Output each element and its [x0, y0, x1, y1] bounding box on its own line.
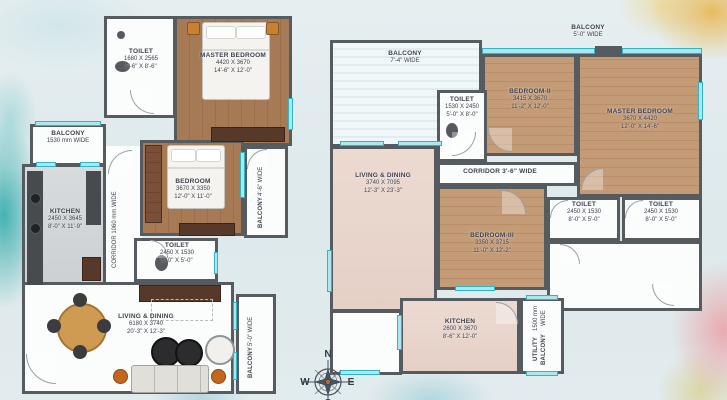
compass-rose: N W E S: [298, 346, 358, 400]
pillow: [196, 149, 222, 162]
right-floor-plan: BALCONY 7'-4" WIDE BALCONY 5'-0" WIDE BE…: [0, 0, 727, 400]
window: [526, 371, 558, 376]
wall-pillar: [595, 46, 622, 56]
room-label: TOILET 2450 X 1530 8'-0" X 5'-0": [632, 201, 690, 225]
window: [35, 121, 101, 126]
side-table: [211, 369, 226, 384]
room-label: BALCONY 5'-0" WIDE: [248, 312, 256, 378]
window: [327, 250, 332, 292]
room-label: TOILET 2450 X 1530 8'-0" X 5'-0": [555, 201, 613, 225]
nightstand: [266, 22, 279, 35]
room-label: BEDROOM 3670 X 3350 12'-0" X 11'-0": [158, 178, 228, 202]
room-label: KITCHEN 2600 X 3670 8'-6" X 12'-0": [428, 318, 492, 342]
room-label: BALCONY 4'-6" WIDE: [258, 158, 266, 228]
compass-north-label: N: [324, 349, 331, 360]
room-label: BEDROOM-II 3415 X 3670 11'-2" X 12'-0": [490, 88, 570, 112]
side-table: [113, 369, 128, 384]
corridor-label: CORRIDOR 1060 mm WIDE: [112, 168, 120, 268]
blanket-line: [203, 49, 269, 51]
room-label: MASTER BEDROOM 4420 X 3670 14'-6" X 12'-…: [184, 52, 282, 76]
pillow: [206, 26, 236, 39]
window: [36, 162, 56, 167]
window: [698, 82, 703, 120]
room-label: TOILET 2450 X 1530 8'-0" X 5'-0": [148, 242, 206, 266]
window: [240, 152, 245, 198]
coffee-table: [175, 339, 203, 367]
compass-east-label: E: [348, 377, 355, 388]
compass-west-label: W: [300, 377, 310, 388]
window: [526, 295, 558, 300]
room-label: LIVING & DINING 6180 X 3740 20'-3" X 12'…: [100, 313, 192, 337]
window: [622, 48, 702, 54]
room-label: BEDROOM-III 3350 X 3715 11'-0" X 12'-2": [452, 232, 532, 256]
room-label: MASTER BEDROOM 3670 X 4420 12'-0" X 14'-…: [592, 108, 688, 132]
accent-chair: [205, 335, 235, 365]
window: [80, 162, 100, 167]
pillow: [236, 26, 266, 39]
corridor-label: CORRIDOR 3'-6" WIDE: [445, 168, 555, 176]
window: [233, 352, 237, 380]
window: [340, 141, 384, 146]
window: [398, 141, 442, 146]
balcony-top-right-label: BALCONY 5'-0" WIDE: [545, 24, 631, 40]
nightstand: [187, 22, 200, 35]
room-label: LIVING & DINING 3740 X 7095 12'-3" X 23'…: [338, 172, 428, 196]
compass-icon: N W E S: [298, 346, 358, 400]
room-label: UTILITY BALCONY 1500 mm WIDE: [533, 306, 549, 366]
window: [214, 252, 218, 274]
dining-chair: [47, 319, 61, 333]
blanket-line: [168, 167, 224, 169]
window: [288, 98, 293, 130]
room-label: TOILET 1680 X 2565 5'-6" X 8'-6": [112, 48, 170, 72]
room-living-dining-right: [330, 146, 437, 312]
dresser: [179, 223, 235, 236]
room-label: BALCONY 7'-4" WIDE: [360, 50, 450, 66]
washbasin: [117, 31, 125, 39]
window: [397, 315, 402, 350]
dining-chair: [73, 293, 87, 307]
sofa: [131, 365, 209, 393]
window: [482, 48, 595, 54]
floor-plan-canvas: TOILET 1680 X 2565 5'-6" X 8'-6" MASTER …: [0, 0, 727, 400]
room-label: TOILET 1530 X 2450 5'-0" X 8'-0": [438, 96, 486, 120]
window: [455, 286, 495, 291]
dresser: [211, 127, 285, 142]
dining-chair: [73, 345, 87, 359]
room-label: KITCHEN 2450 X 3645 8'-0" X 11'-9": [34, 208, 96, 232]
room-label: BALCONY 1530 mm WIDE: [34, 130, 102, 146]
hob: [30, 193, 41, 204]
pillow: [171, 149, 197, 162]
fridge: [82, 257, 101, 281]
window: [233, 302, 237, 330]
